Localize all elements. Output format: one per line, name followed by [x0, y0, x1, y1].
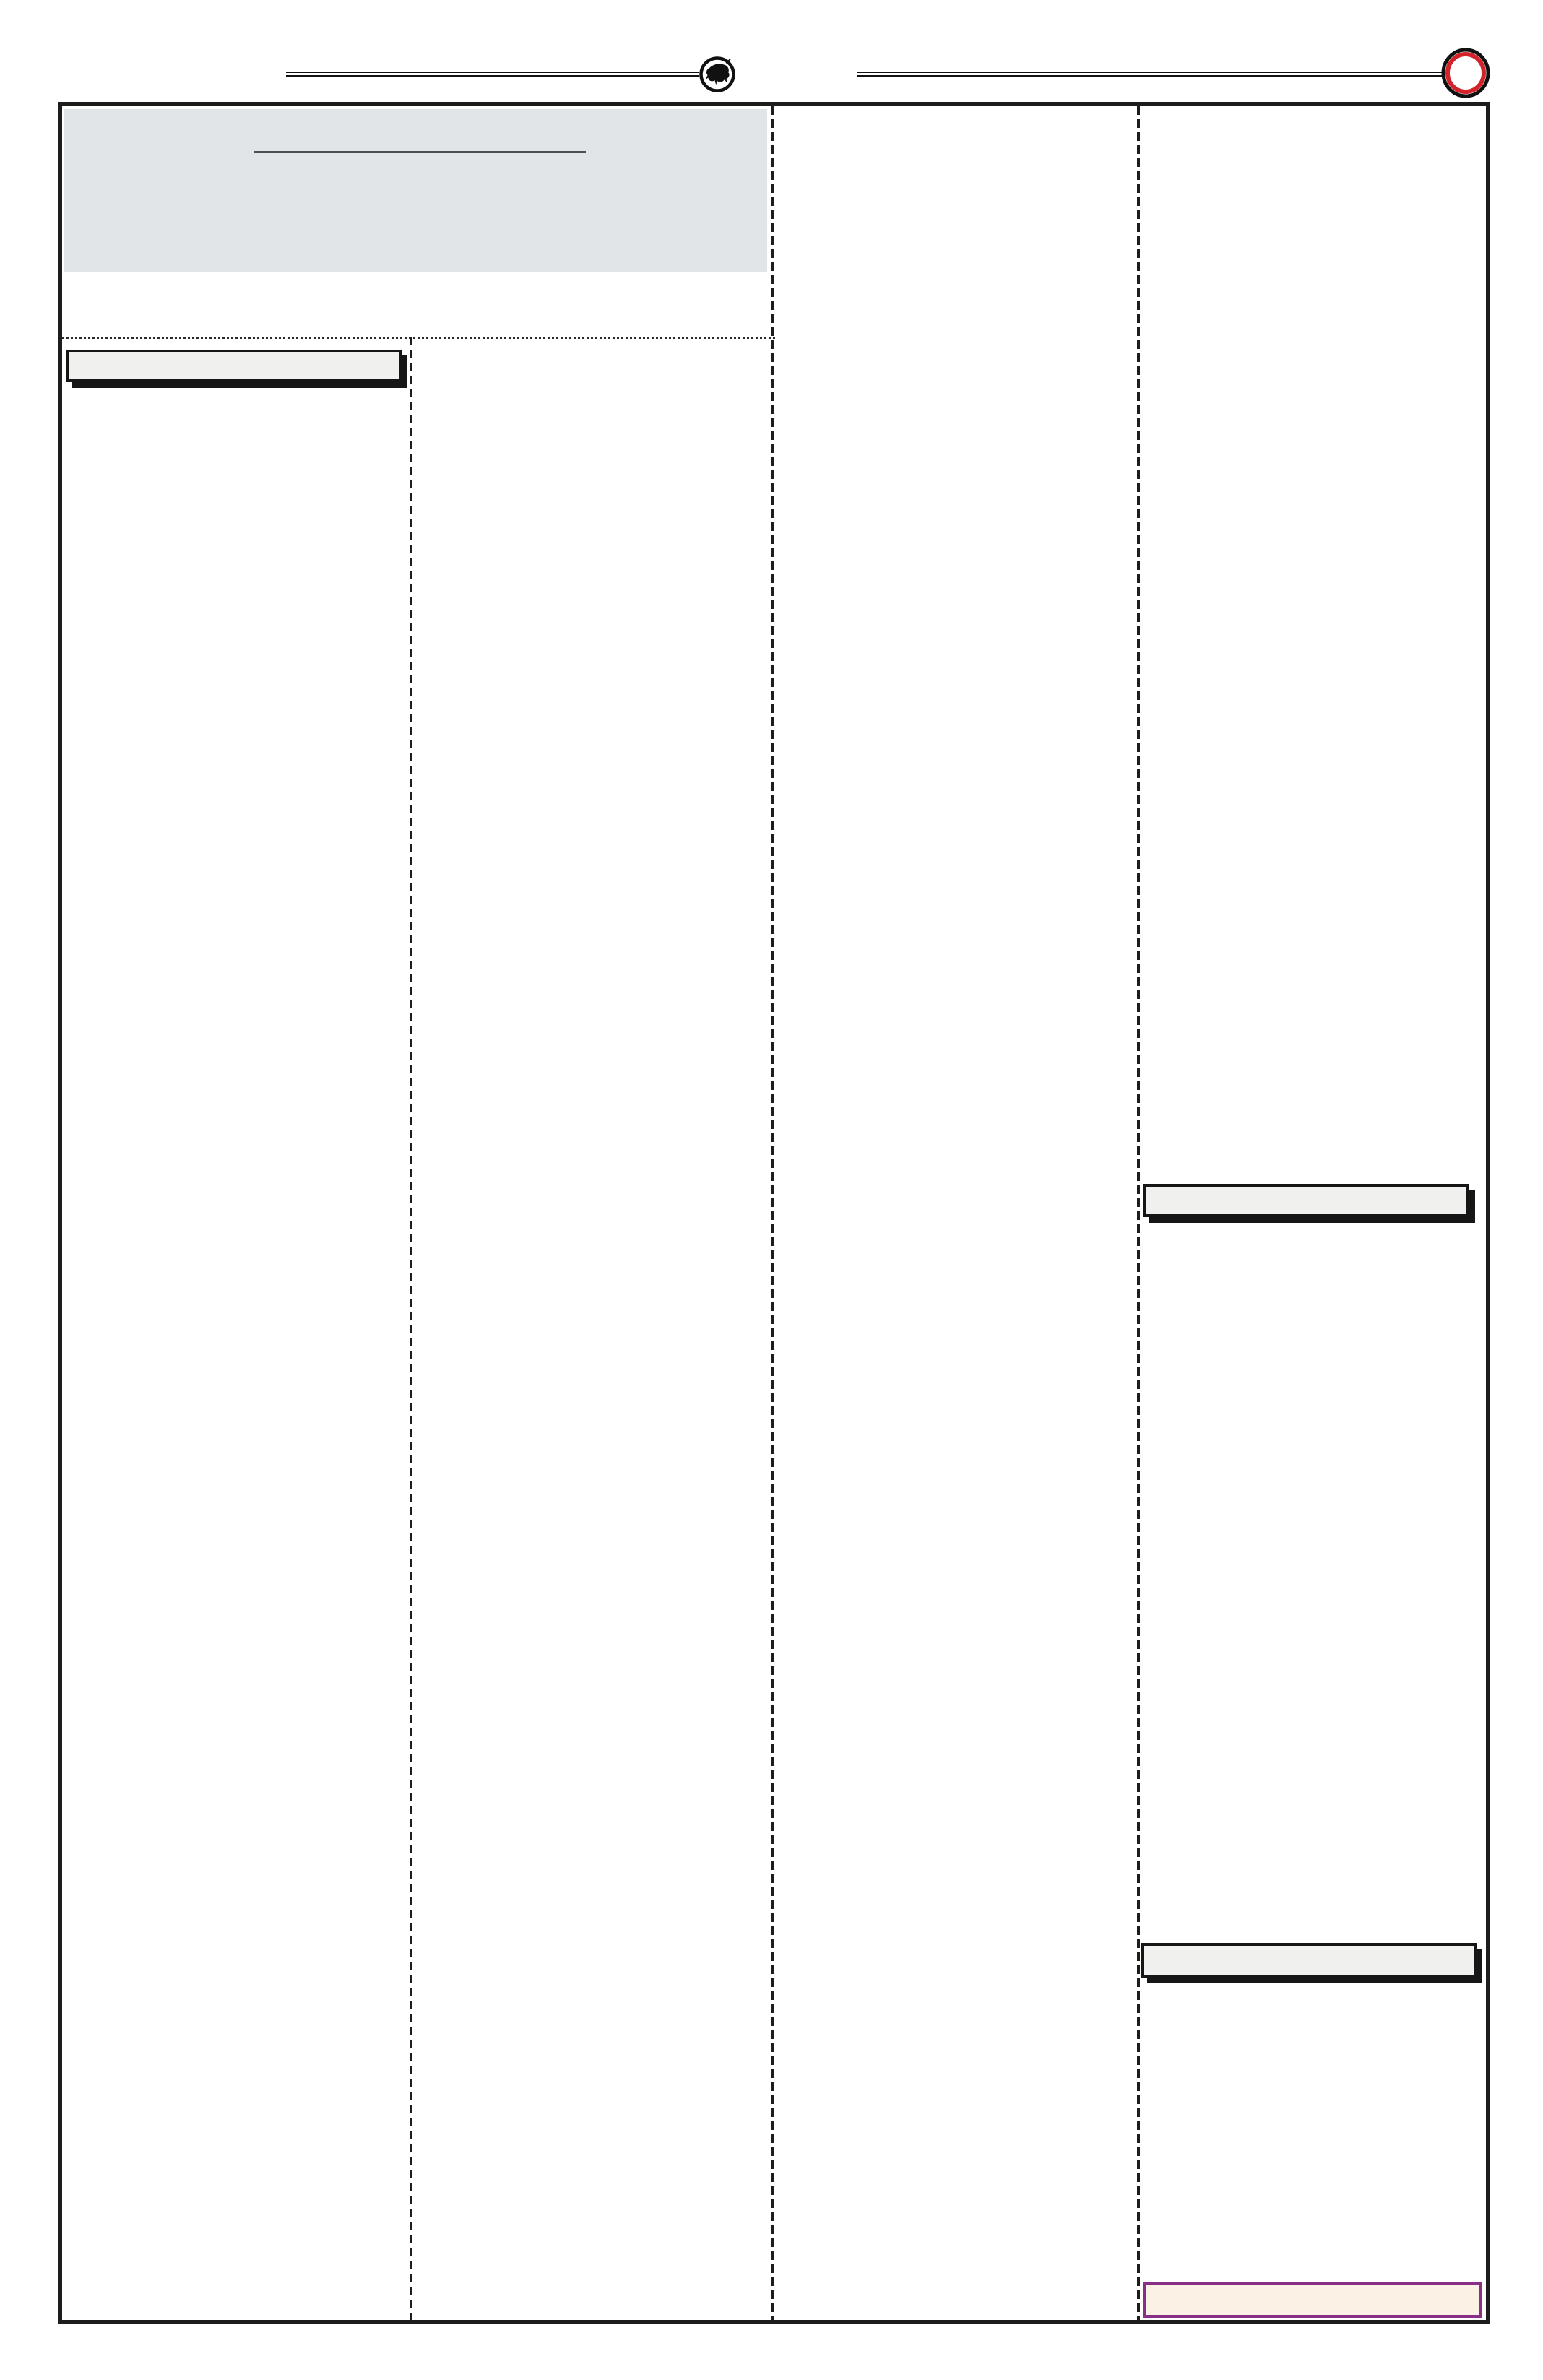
red-ring-seal-icon	[1440, 48, 1491, 98]
highlight-bar-column4-bottom[interactable]	[1143, 2282, 1482, 2318]
headline-bar-column1[interactable]	[66, 350, 402, 382]
newspaper-page	[0, 0, 1543, 2380]
masthead-bottom-dotted-rule	[62, 337, 776, 339]
headline-bar-column4-middle[interactable]	[1141, 1943, 1477, 1978]
headline-bar-column4-top[interactable]	[1143, 1184, 1469, 1217]
bull-emblem-icon	[698, 55, 737, 94]
top-right-double-rule	[857, 72, 1442, 77]
column-divider-1	[410, 337, 412, 2320]
column-divider-2	[771, 106, 774, 2320]
masthead-panel	[64, 109, 767, 272]
top-left-double-rule	[286, 72, 699, 77]
column-divider-3	[1137, 106, 1140, 2320]
masthead-title-rule	[254, 151, 586, 153]
